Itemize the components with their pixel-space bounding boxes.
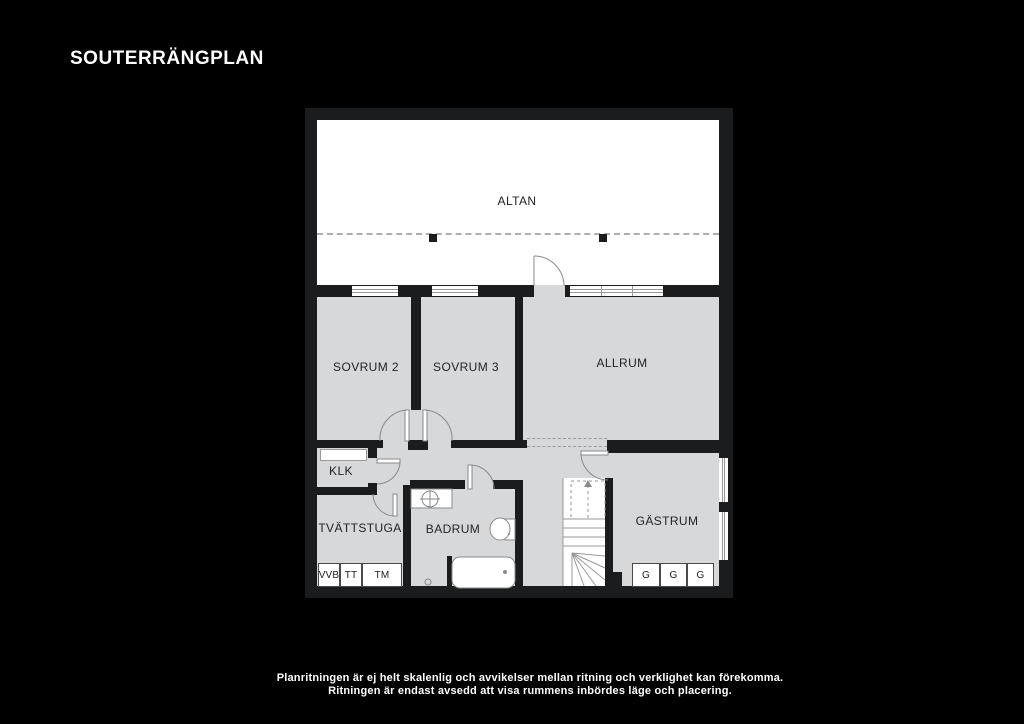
room-label-sovrum2: SOVRUM 2 bbox=[333, 360, 399, 374]
floor-plan: VVB TT TM G G G bbox=[305, 108, 733, 598]
disclaimer-line1: Planritningen är ej helt skalenlig och a… bbox=[242, 672, 818, 685]
room-label-altan: ALTAN bbox=[498, 194, 537, 208]
door-altan bbox=[534, 256, 564, 286]
room-label-badrum: BADRUM bbox=[426, 522, 480, 536]
floorplan-page: SOUTERRÄNGPLAN bbox=[0, 0, 1024, 724]
toilet-icon bbox=[490, 518, 515, 540]
disclaimer-line2: Ritningen är endast avsedd att visa rumm… bbox=[242, 685, 818, 698]
door-klk bbox=[377, 459, 400, 484]
room-label-allrum: ALLRUM bbox=[596, 356, 647, 370]
door-tvattstuga bbox=[373, 494, 397, 516]
door-gastrum bbox=[581, 451, 608, 480]
floor-drain-icon bbox=[425, 579, 431, 585]
room-label-gastrum: GÄSTRUM bbox=[636, 514, 699, 528]
door-sovrum3 bbox=[423, 410, 452, 441]
room-label-sovrum3: SOVRUM 3 bbox=[433, 360, 499, 374]
room-label-tvattstuga: TVÄTTSTUGA bbox=[318, 521, 401, 535]
disclaimer-caption: Planritningen är ej helt skalenlig och a… bbox=[242, 672, 818, 698]
bathtub-icon bbox=[452, 557, 515, 588]
room-label-klk: KLK bbox=[329, 464, 353, 478]
page-title: SOUTERRÄNGPLAN bbox=[70, 48, 264, 70]
door-sovrum2 bbox=[380, 410, 409, 441]
sink-icon bbox=[411, 489, 452, 508]
stairs-icon bbox=[563, 478, 605, 586]
door-badrum bbox=[468, 465, 494, 489]
